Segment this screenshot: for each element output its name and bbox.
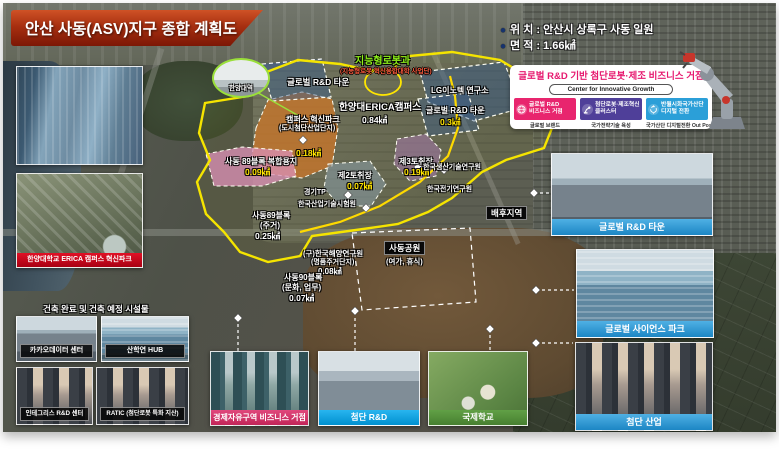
label-block89-area: 0.25㎢ xyxy=(255,232,280,241)
caption-kakao: 카카오데이터 센터 xyxy=(20,344,93,358)
photo-kakao-data-center: 카카오데이터 센터 xyxy=(16,316,97,362)
caption-entegris: 인테그리스 R&D 센터 xyxy=(20,407,89,421)
card-caption: 글로벌 브랜드 xyxy=(514,122,576,129)
caption-free-economic-zone: 경제자유구역 비즈니스 거점 xyxy=(211,410,308,425)
label-campus-area: 0.84㎢ xyxy=(362,116,387,125)
robot-arm-icon xyxy=(582,104,593,115)
label-innovation-park-sub: (도시첨단산업단지) xyxy=(279,125,335,133)
caption-hub: 산학연 HUB xyxy=(105,344,185,358)
bullet-icon: ● xyxy=(500,41,506,52)
label-block89-use: (주거) xyxy=(260,222,280,231)
label-campus: 한양대ERICA캠퍼스 xyxy=(339,103,421,113)
label-robot-dept-sub: (지능형로봇 혁신융합대학 사업단) xyxy=(340,68,432,75)
caption-advanced-industry: 첨단 산업 xyxy=(576,414,712,430)
caption-global-rnd-town: 글로벌 R&D 타운 xyxy=(552,219,712,235)
concept-card-robot-cluster: 첨단로봇·제조혁신클러스터 국가전략기술 육성 xyxy=(580,98,642,129)
photo-ratic: RATIC (첨단로봇 특화 지산) xyxy=(96,367,189,425)
label-quarry2-area: 0.07㎢ xyxy=(347,182,372,191)
label-kitl: 한국산업기술시험원 xyxy=(298,201,356,209)
label-block90: 사동90블록 xyxy=(284,274,322,283)
photo-industrial-complex xyxy=(16,66,143,165)
bullet-icon: ● xyxy=(500,25,506,36)
globe-icon xyxy=(516,104,527,115)
photo-entegris-rnd: 인테그리스 R&D 센터 xyxy=(16,367,93,425)
label-lg-innotek: LG이노텍 연구소 xyxy=(431,87,489,96)
label-rnd-town-right-area: 0.3㎢ xyxy=(440,118,460,127)
info-box-subtitle: Center for Innovative Growth xyxy=(549,84,673,95)
meta-location: ●위 치 : 안산시 상록구 사동 일원 xyxy=(500,21,654,37)
photo-hub: 산학연 HUB xyxy=(101,316,189,362)
photo-free-economic-zone: 경제자유구역 비즈니스 거점 xyxy=(210,351,309,426)
photo-international-school: 국제학교 xyxy=(428,351,528,426)
card-caption: 국가전략기술 육성 xyxy=(580,122,642,129)
label-block90-use: (문화, 업무) xyxy=(282,284,321,293)
label-quarry2: 제2토취장 xyxy=(338,172,372,181)
meta-area: ●면 적 : 1.66㎢ xyxy=(500,37,576,53)
caption-global-science-park: 글로벌 사이언스 파크 xyxy=(577,321,713,337)
caption-erica: 한양대학교 ERICA 캠퍼스 혁신파크 xyxy=(17,253,142,267)
label-innovation-park: 캠퍼스 혁신파크 xyxy=(286,116,340,125)
photo-erica-innovation-park: 한양대학교 ERICA 캠퍼스 혁신파크 xyxy=(16,173,143,268)
aerial-map: 지능형로봇과 (지능형로봇 혁신융합대학 사업단) 글로벌 R&D 타운 LG이… xyxy=(3,3,776,432)
digital-transform-icon xyxy=(648,104,659,115)
concept-card-global-rnd: 글로벌 R&D비즈니스 거점 글로벌 브랜드 xyxy=(514,98,576,129)
facilities-header: 건축 완료 및 건축 예정 시설물 xyxy=(43,303,149,315)
label-kordi: (구)한국해양연구원 xyxy=(303,250,363,258)
label-station: 한양대역 xyxy=(229,82,253,92)
page-title: 안산 사동(ASV)지구 종합 계획도 xyxy=(11,10,263,46)
label-block90-area: 0.07㎢ xyxy=(289,294,314,303)
photo-global-rnd-town: 글로벌 R&D 타운 xyxy=(551,153,713,236)
plan-poster: 지능형로봇과 (지능형로봇 혁신융합대학 사업단) 글로벌 R&D 타운 LG이… xyxy=(0,0,779,449)
label-rnd-town-left: 글로벌 R&D 타운 xyxy=(287,78,349,87)
label-innovation-park-area: 0.18㎢ xyxy=(296,149,321,158)
label-park: 사동공원 xyxy=(384,241,425,255)
label-hinterland: 배후지역 xyxy=(486,206,527,220)
photo-advanced-rnd: 첨단 R&D xyxy=(318,351,420,426)
label-block89: 사동89블록 xyxy=(252,212,290,221)
caption-ratic: RATIC (첨단로봇 특화 지산) xyxy=(100,407,185,421)
label-park-sub: (여가, 휴식) xyxy=(386,258,423,266)
label-gtp: 경기TP xyxy=(304,189,326,197)
label-rnd-town-right: 글로벌 R&D 타운 xyxy=(426,107,485,116)
robot-arm-illustration xyxy=(679,51,759,133)
label-keri: 한국전기연구원 xyxy=(427,186,472,194)
caption-advanced-rnd: 첨단 R&D xyxy=(319,410,419,425)
station-callout: 한양대역 xyxy=(212,58,270,98)
label-kitech: 한국생산기술연구원 xyxy=(423,164,481,172)
label-block89-mixed-area: 0.09㎢ xyxy=(245,168,270,177)
caption-international-school: 국제학교 xyxy=(429,410,527,425)
label-robot-dept: 지능형로봇과 xyxy=(355,56,410,67)
label-kordi-sub: (명품주거단지) xyxy=(311,259,354,267)
photo-global-science-park: 글로벌 사이언스 파크 xyxy=(576,249,714,338)
photo-advanced-industry: 첨단 산업 xyxy=(575,342,713,431)
label-block89-mixed: 사동 89블록 복합용지 xyxy=(225,158,297,167)
